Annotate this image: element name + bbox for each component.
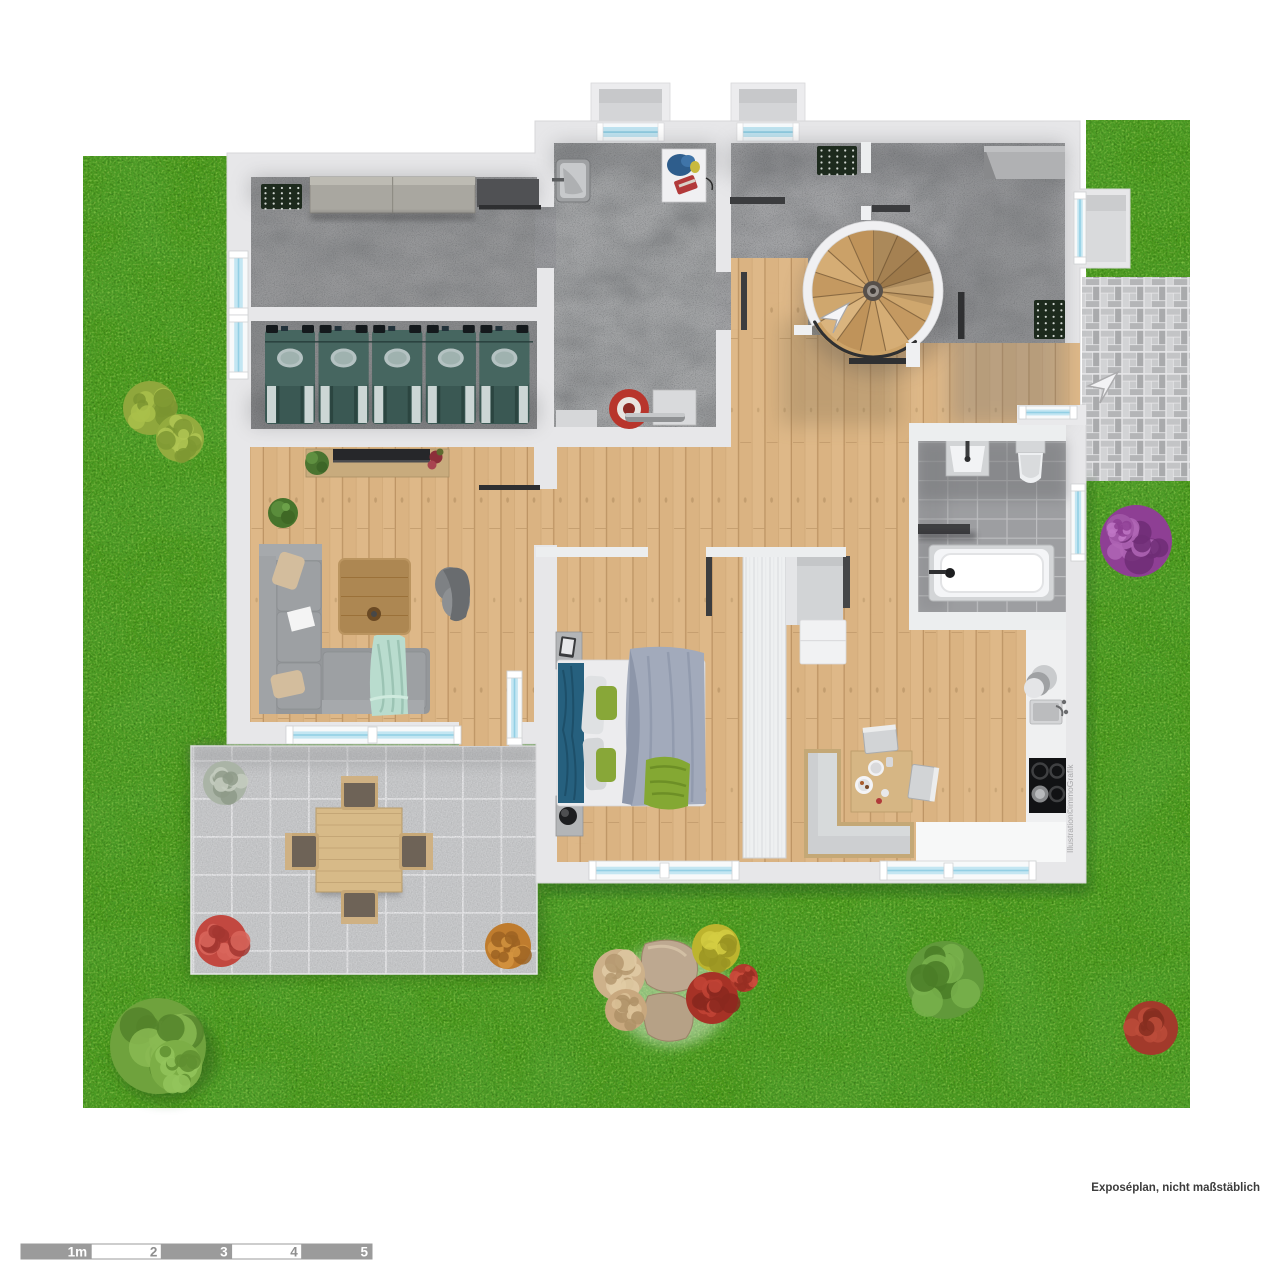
svg-text:Illustration©immoGrafik: Illustration©immoGrafik — [1065, 764, 1075, 853]
svg-text:5: 5 — [360, 1245, 368, 1260]
svg-text:4: 4 — [290, 1245, 298, 1260]
svg-text:3: 3 — [220, 1245, 228, 1260]
svg-text:2: 2 — [150, 1245, 158, 1260]
svg-text:Exposéplan, nicht maßstäblich: Exposéplan, nicht maßstäblich — [1091, 1182, 1260, 1194]
svg-text:1m: 1m — [68, 1245, 88, 1260]
